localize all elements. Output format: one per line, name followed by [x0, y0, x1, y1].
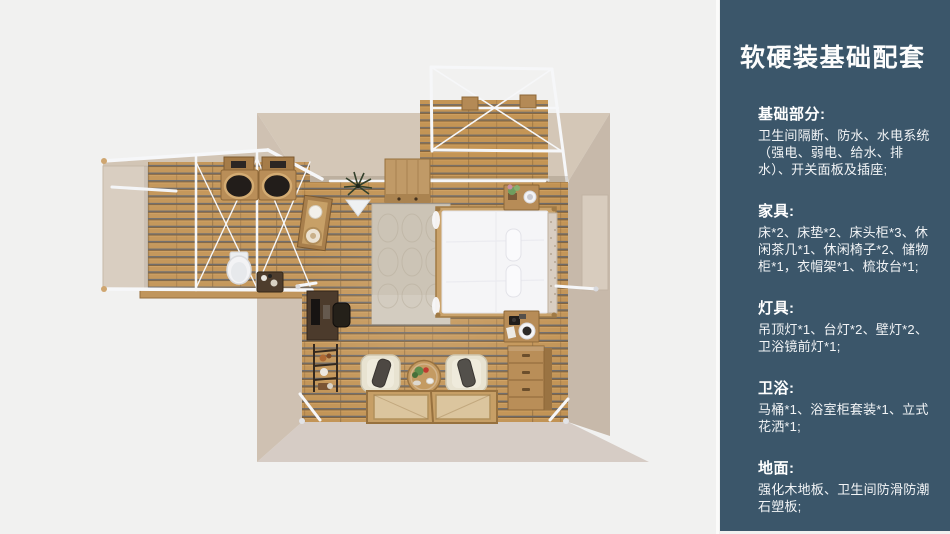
- spec-section-basics: 基础部分: 卫生间隔断、防水、水电系统（强电、弱电、给水、排水）、开关面板及插座…: [758, 103, 936, 178]
- slide: 软硬装基础配套 基础部分: 卫生间隔断、防水、水电系统（强电、弱电、给水、排水）…: [0, 0, 950, 534]
- storage-cabinet: [385, 159, 430, 203]
- sidebar-divider-line: [716, 0, 719, 534]
- floorplan-svg: [0, 0, 720, 534]
- toilet: [227, 252, 251, 284]
- pillow: [506, 229, 521, 261]
- section-heading: 卫浴:: [758, 377, 936, 398]
- section-body: 卫生间隔断、防水、水电系统（强电、弱电、给水、排水）、开关面板及插座;: [758, 127, 936, 178]
- floorplan-render: [0, 0, 720, 534]
- bath-side-table: [257, 272, 283, 292]
- floor-mats: [367, 391, 497, 423]
- section-heading: 地面:: [758, 457, 936, 478]
- headboard: [548, 213, 557, 313]
- section-body: 马桶*1、浴室柜套装*1、立式花洒*1;: [758, 401, 936, 435]
- spec-section-lighting: 灯具: 吊顶灯*1、台灯*2、壁灯*2、卫浴镜前灯*1;: [758, 297, 936, 355]
- section-body: 床*2、床垫*2、床头柜*3、休闲茶几*1、休闲椅子*2、储物柜*1，衣帽架*1…: [758, 224, 936, 275]
- wardrobe-nook: [103, 166, 148, 290]
- right-wall-door: [582, 195, 608, 290]
- lounge-chair-right: [446, 355, 487, 392]
- spec-section-flooring: 地面: 强化木地板、卫生间防滑防潮石塑板;: [758, 457, 936, 515]
- bed: [432, 199, 557, 318]
- info-sidebar: 软硬装基础配套 基础部分: 卫生间隔断、防水、水电系统（强电、弱电、给水、排水）…: [720, 0, 950, 531]
- section-heading: 基础部分:: [758, 103, 936, 124]
- lounge-chair-left: [361, 355, 400, 392]
- balcony: [420, 67, 567, 182]
- dresser: [508, 346, 552, 410]
- spec-section-bathroom: 卫浴: 马桶*1、浴室柜套装*1、立式花洒*1;: [758, 377, 936, 435]
- section-body: 吊顶灯*1、台灯*2、壁灯*2、卫浴镜前灯*1;: [758, 321, 936, 355]
- section-heading: 灯具:: [758, 297, 936, 318]
- nightstand-top: [504, 185, 539, 211]
- sidebar-title: 软硬装基础配套: [740, 44, 934, 73]
- nightstand-bottom: [504, 311, 539, 342]
- section-heading: 家具:: [758, 200, 936, 221]
- pillow: [506, 265, 521, 297]
- spec-section-furniture: 家具: 床*2、床垫*2、床头柜*3、休闲茶几*1、休闲椅子*2、储物柜*1，衣…: [758, 200, 936, 275]
- tea-table: [408, 361, 441, 394]
- section-body: 强化木地板、卫生间防滑防潮石塑板;: [758, 481, 936, 515]
